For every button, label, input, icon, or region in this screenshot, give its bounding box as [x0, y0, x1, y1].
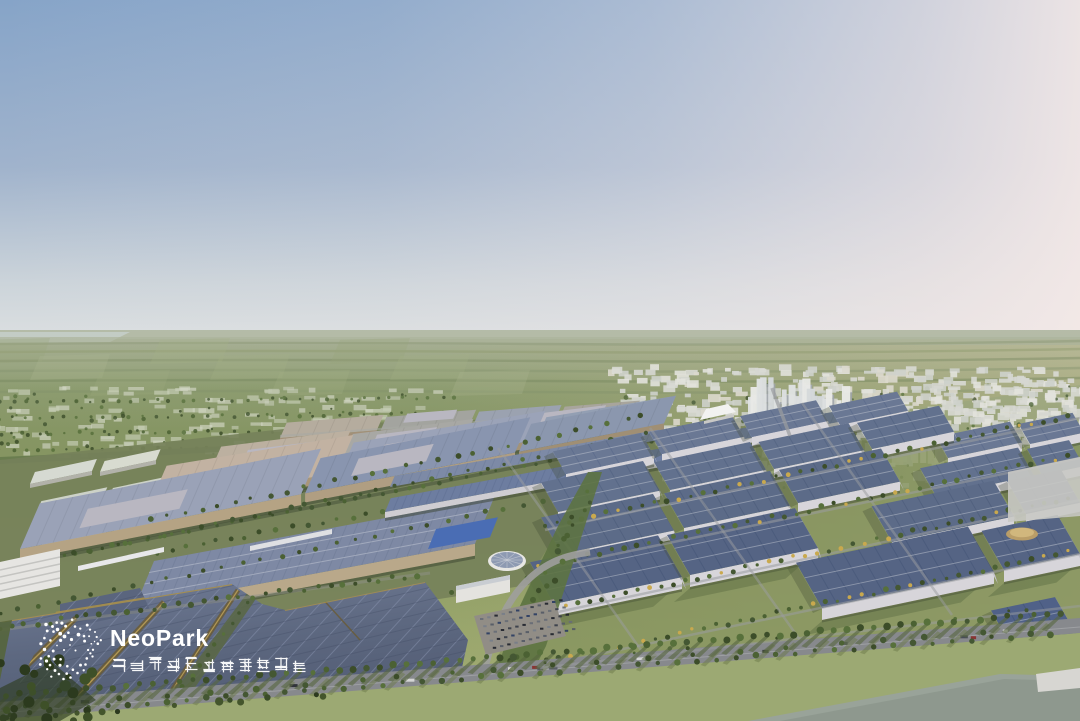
svg-text:NeoPark: NeoPark [110, 625, 209, 651]
